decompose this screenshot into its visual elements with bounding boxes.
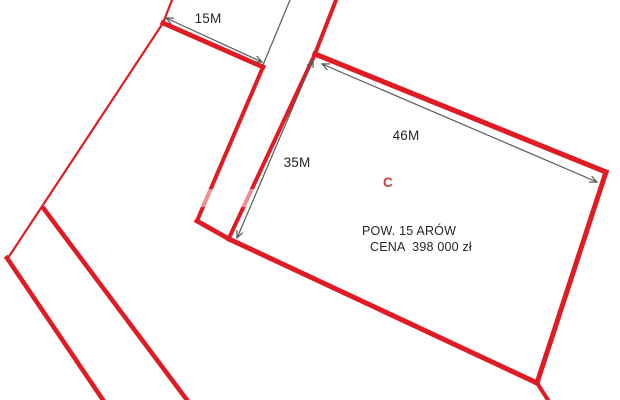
measurement-label-35m: 35M xyxy=(284,155,311,171)
street-end-segment xyxy=(197,221,229,239)
plot-c-left-edge xyxy=(229,54,315,238)
left-boundary-line xyxy=(8,23,163,258)
measurement-label-46m: 46M xyxy=(393,128,420,144)
lower-strip-left-line xyxy=(7,258,103,400)
top-boundary-stub xyxy=(315,0,336,54)
parcel-boundary-line xyxy=(263,0,290,65)
plot-c-top-edge xyxy=(315,54,606,172)
plot-price-label: CENA 398 000 zł xyxy=(370,240,472,254)
plot-c-name-label: C xyxy=(383,175,393,191)
watermark-band xyxy=(143,189,268,207)
lower-strip-right-line xyxy=(44,209,187,400)
measure-arrow-35m xyxy=(237,60,313,238)
measure-arrow-46m xyxy=(322,64,597,182)
land-plot-diagram: 15M 35M 46M C POW. 15 ARÓW CENA 398 000 … xyxy=(0,0,620,400)
plot-area-label: POW. 15 ARÓW xyxy=(362,224,456,238)
measurement-label-15m: 15M xyxy=(195,11,222,27)
front-15m-side xyxy=(163,23,263,67)
plot-lines-svg xyxy=(0,0,620,400)
plot-c-right-edge xyxy=(537,172,606,383)
plot-c-bottom-edge xyxy=(229,239,537,383)
